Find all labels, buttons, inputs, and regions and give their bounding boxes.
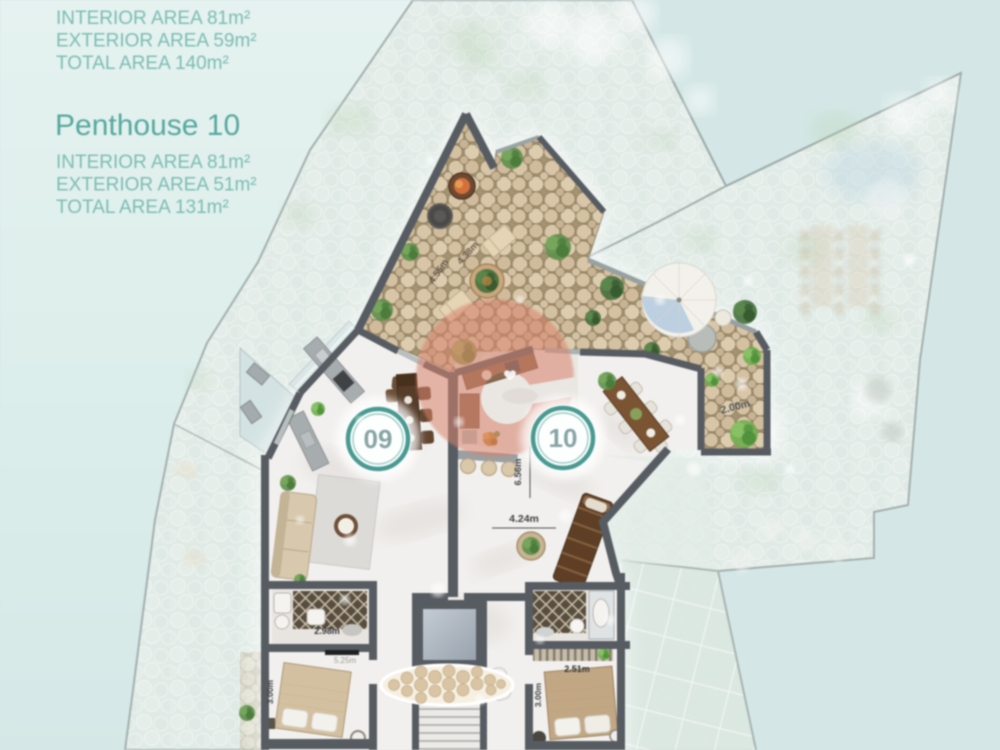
svg-text:3.00m: 3.00m bbox=[265, 680, 275, 705]
svg-text:TOTAL AREA 140m²: TOTAL AREA 140m² bbox=[56, 53, 229, 74]
svg-text:INTERIOR AREA 81m²: INTERIOR AREA 81m² bbox=[56, 152, 250, 173]
svg-text:Penthouse 10: Penthouse 10 bbox=[55, 109, 240, 142]
svg-text:2.51m: 2.51m bbox=[564, 664, 590, 674]
svg-text:3.00m: 3.00m bbox=[533, 683, 543, 708]
svg-text:INTERIOR AREA 81m²: INTERIOR AREA 81m² bbox=[56, 8, 250, 29]
svg-text:5.25m: 5.25m bbox=[334, 656, 357, 665]
svg-text:EXTERIOR AREA 51m²: EXTERIOR AREA 51m² bbox=[56, 175, 257, 196]
svg-text:EXTERIOR AREA 59m²: EXTERIOR AREA 59m² bbox=[56, 31, 257, 52]
svg-text:2.98m: 2.98m bbox=[314, 626, 340, 636]
svg-text:10: 10 bbox=[549, 423, 578, 453]
svg-text:6.56m: 6.56m bbox=[513, 459, 524, 486]
svg-text:09: 09 bbox=[364, 424, 393, 454]
svg-text:4.24m: 4.24m bbox=[509, 513, 539, 525]
svg-text:TOTAL AREA 131m²: TOTAL AREA 131m² bbox=[56, 197, 229, 218]
